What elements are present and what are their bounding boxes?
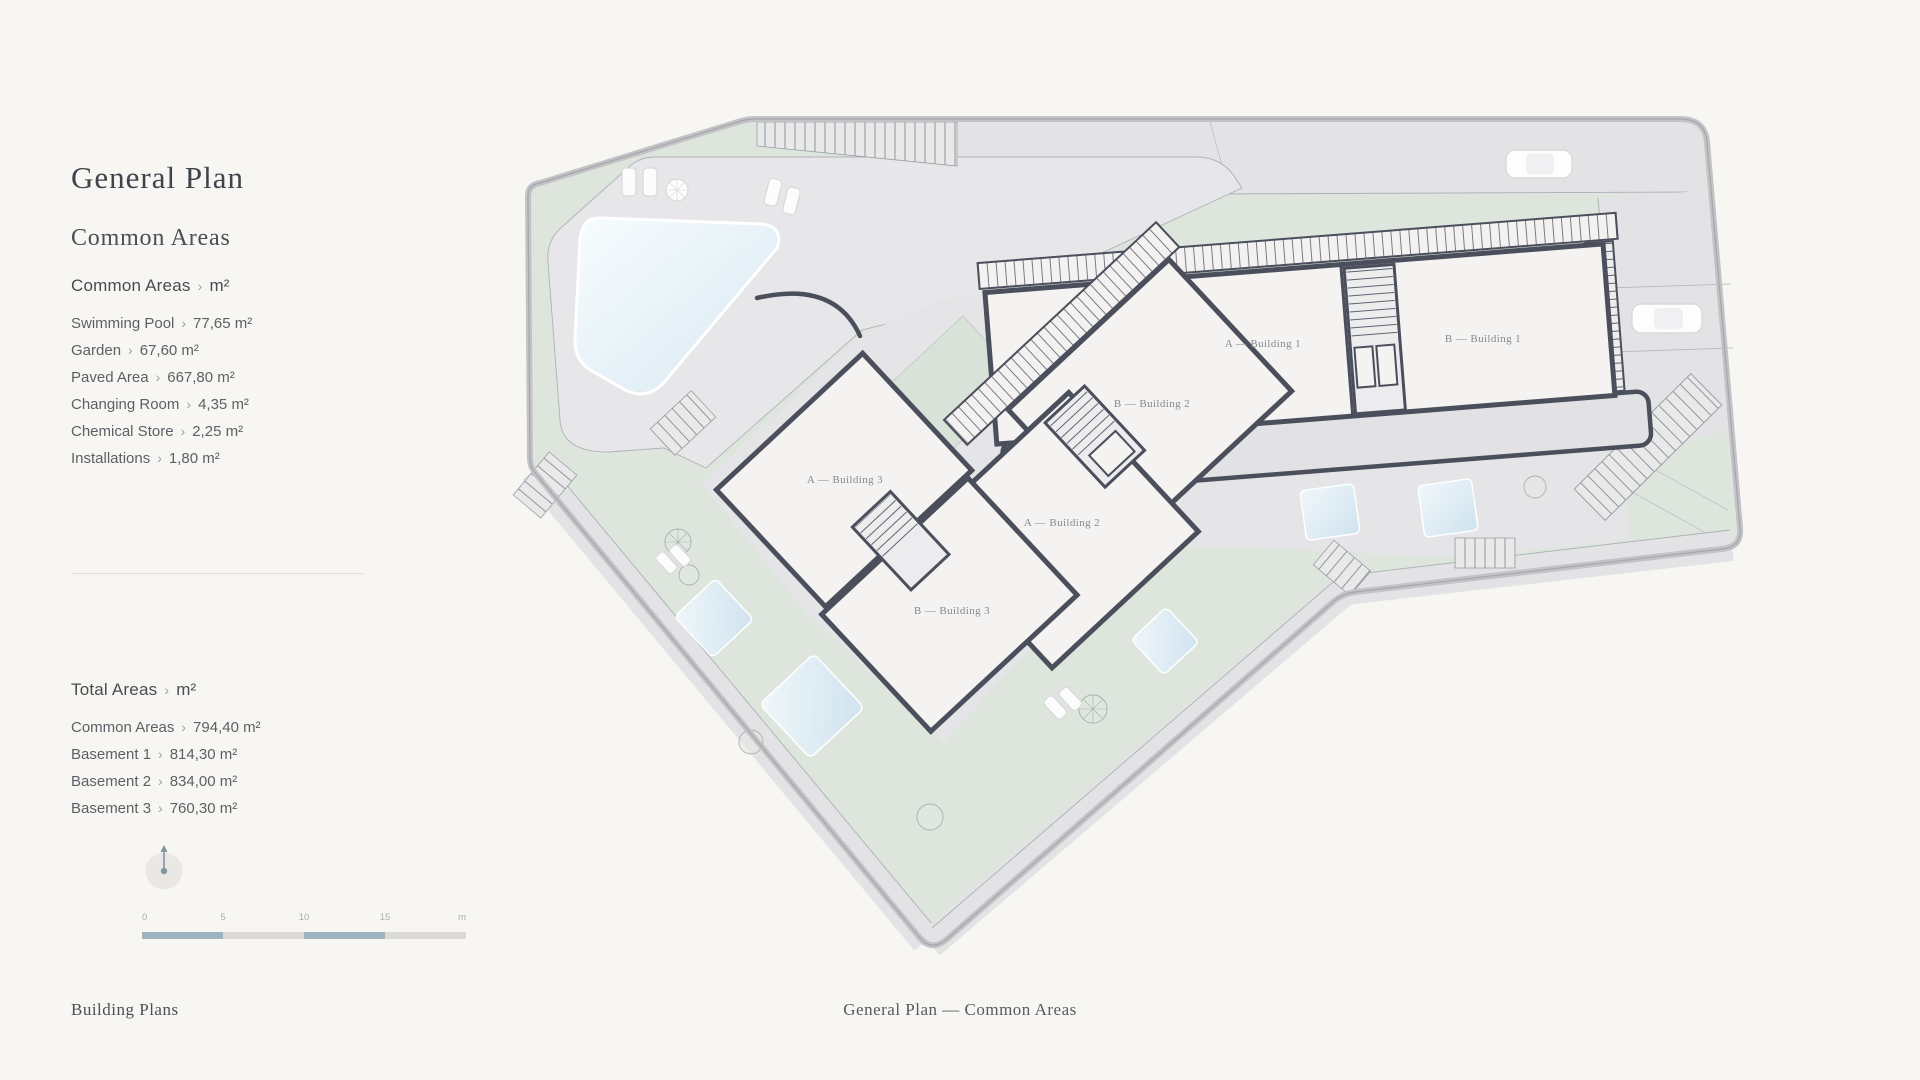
chevron-separator: › [174,719,193,735]
sidebar-divider [71,573,364,574]
scale-bar: 0 5 10 15 m [142,912,466,942]
north-compass-icon [145,845,185,891]
area-list-item: Basement 3›760,30 m² [71,795,261,822]
area-list-item: Basement 1›814,30 m² [71,741,261,768]
breadcrumb: General Plan — Common Areas [843,1000,1077,1020]
area-list-item: Swimming Pool›77,65 m² [71,310,252,337]
parasol-icon [666,179,688,201]
total-areas-list: Common Areas›794,40 m² Basement 1›814,30… [71,714,261,822]
chevron-separator: › [121,342,140,358]
chevron-separator: › [151,800,170,816]
page: { "page_background": "#f8f6f2", "sidebar… [0,0,1920,1080]
chevron-separator: › [150,450,169,466]
building-label-a3: A — Building 3 [807,474,883,486]
scale-ticks: 0 5 10 15 m [142,912,466,925]
building-label-b1: B — Building 1 [1445,333,1521,345]
site-plan-svg: A — Building 1 B — Building 1 B — Buildi… [480,100,1780,980]
building-label-a2: A — Building 2 [1024,517,1100,529]
chevron-separator: › [174,423,193,439]
area-list-item: Garden›67,60 m² [71,337,252,364]
building-label-a1: A — Building 1 [1225,338,1301,350]
common-areas-section: Common Areas›m² Swimming Pool›77,65 m² G… [71,276,252,472]
site-plan: A — Building 1 B — Building 1 B — Buildi… [480,100,1780,980]
chevron-separator: › [174,315,193,331]
chevron-separator: › [151,773,170,789]
common-areas-heading: Common Areas›m² [71,276,252,296]
building-plans-link[interactable]: Building Plans [71,1000,179,1020]
common-areas-list: Swimming Pool›77,65 m² Garden›67,60 m² P… [71,310,252,472]
building-label-b3: B — Building 3 [914,605,990,617]
page-subtitle: Common Areas [71,225,231,252]
chevron-separator: › [149,369,168,385]
area-list-item: Chemical Store›2,25 m² [71,418,252,445]
chevron-separator: › [179,396,198,412]
area-list-item: Paved Area›667,80 m² [71,364,252,391]
chevron-separator: › [151,746,170,762]
area-list-item: Common Areas›794,40 m² [71,714,261,741]
scale-bar-segments [142,932,466,939]
total-areas-section: Total Areas›m² Common Areas›794,40 m² Ba… [71,680,261,822]
page-title: General Plan [71,160,244,196]
total-areas-heading: Total Areas›m² [71,680,261,700]
area-list-item: Installations›1,80 m² [71,445,252,472]
building-label-b2: B — Building 2 [1114,398,1190,410]
area-list-item: Changing Room›4,35 m² [71,391,252,418]
scale-unit: m [458,912,466,923]
chevron-separator: › [157,682,176,698]
chevron-separator: › [191,278,210,294]
area-list-item: Basement 2›834,00 m² [71,768,261,795]
